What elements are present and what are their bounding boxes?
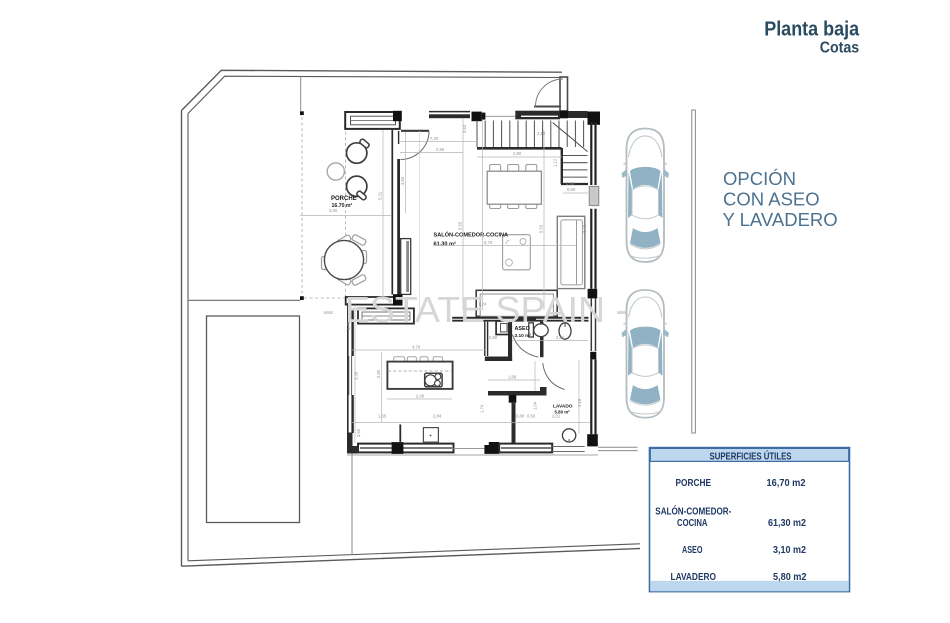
svg-text:- ESTATE SPAIN -: - ESTATE SPAIN -: [322, 289, 628, 330]
svg-text:3,10 m2: 3,10 m2: [773, 544, 806, 556]
svg-text:0,80: 0,80: [376, 369, 381, 378]
svg-text:2,84: 2,84: [433, 413, 442, 418]
svg-text:Y LAVADERO: Y LAVADERO: [723, 209, 838, 230]
svg-text:5,53: 5,53: [539, 224, 544, 233]
svg-text:6,55: 6,55: [458, 221, 463, 230]
svg-text:2,80: 2,80: [513, 151, 522, 156]
svg-text:SUPERFICIES ÚTILES: SUPERFICIES ÚTILES: [710, 449, 792, 462]
svg-text:1,35: 1,35: [378, 413, 387, 418]
svg-text:0,60: 0,60: [567, 187, 576, 192]
svg-text:0,60: 0,60: [489, 335, 498, 340]
svg-text:2,06: 2,06: [416, 393, 425, 398]
svg-text:1,74: 1,74: [480, 404, 485, 413]
svg-text:1,88: 1,88: [508, 375, 517, 380]
svg-text:3.10 m²: 3.10 m²: [515, 333, 532, 339]
svg-text:PORCHE: PORCHE: [676, 477, 712, 489]
svg-text:2,19: 2,19: [577, 398, 582, 407]
svg-text:2,41: 2,41: [556, 335, 565, 340]
svg-text:16,70 m2: 16,70 m2: [767, 477, 806, 489]
svg-text:3,43: 3,43: [582, 224, 587, 233]
svg-text:2,80: 2,80: [537, 131, 546, 136]
svg-text:CON ASEO: CON ASEO: [723, 189, 820, 210]
svg-text:5,31: 5,31: [378, 191, 383, 200]
svg-text:7,20: 7,20: [430, 136, 439, 141]
svg-text:3,60: 3,60: [356, 428, 361, 437]
svg-text:0,86: 0,86: [566, 181, 575, 186]
svg-text:4,79: 4,79: [412, 344, 421, 349]
svg-text:2,01: 2,01: [552, 413, 561, 418]
svg-text:61.30 m²: 61.30 m²: [434, 240, 457, 247]
svg-text:5,80 m2: 5,80 m2: [773, 571, 807, 583]
svg-text:PORCHE: PORCHE: [331, 196, 357, 202]
svg-text:ASEO: ASEO: [682, 544, 703, 556]
svg-text:3,39: 3,39: [354, 371, 359, 380]
svg-text:0,60: 0,60: [527, 413, 536, 418]
svg-text:SALÓN-COMEDOR-: SALÓN-COMEDOR-: [655, 505, 731, 518]
svg-text:3,83: 3,83: [400, 176, 405, 185]
svg-text:Cotas: Cotas: [820, 40, 860, 57]
svg-text:COCINA: COCINA: [677, 517, 708, 529]
svg-text:SALÓN-COMEDOR-COCINA: SALÓN-COMEDOR-COCINA: [434, 230, 509, 238]
svg-text:2,50: 2,50: [436, 147, 445, 152]
svg-text:0,63: 0,63: [462, 124, 467, 133]
svg-text:0,80: 0,80: [516, 413, 525, 418]
svg-text:61,30 m2: 61,30 m2: [768, 517, 806, 529]
svg-text:OPCIÓN: OPCIÓN: [723, 168, 796, 189]
svg-text:5,70: 5,70: [484, 240, 493, 245]
svg-text:1,12: 1,12: [553, 158, 558, 167]
svg-text:Planta baja: Planta baja: [764, 19, 860, 41]
svg-text:LAVADERO: LAVADERO: [671, 571, 717, 583]
svg-text:1,04: 1,04: [533, 401, 538, 410]
svg-text:3,00: 3,00: [329, 208, 338, 213]
